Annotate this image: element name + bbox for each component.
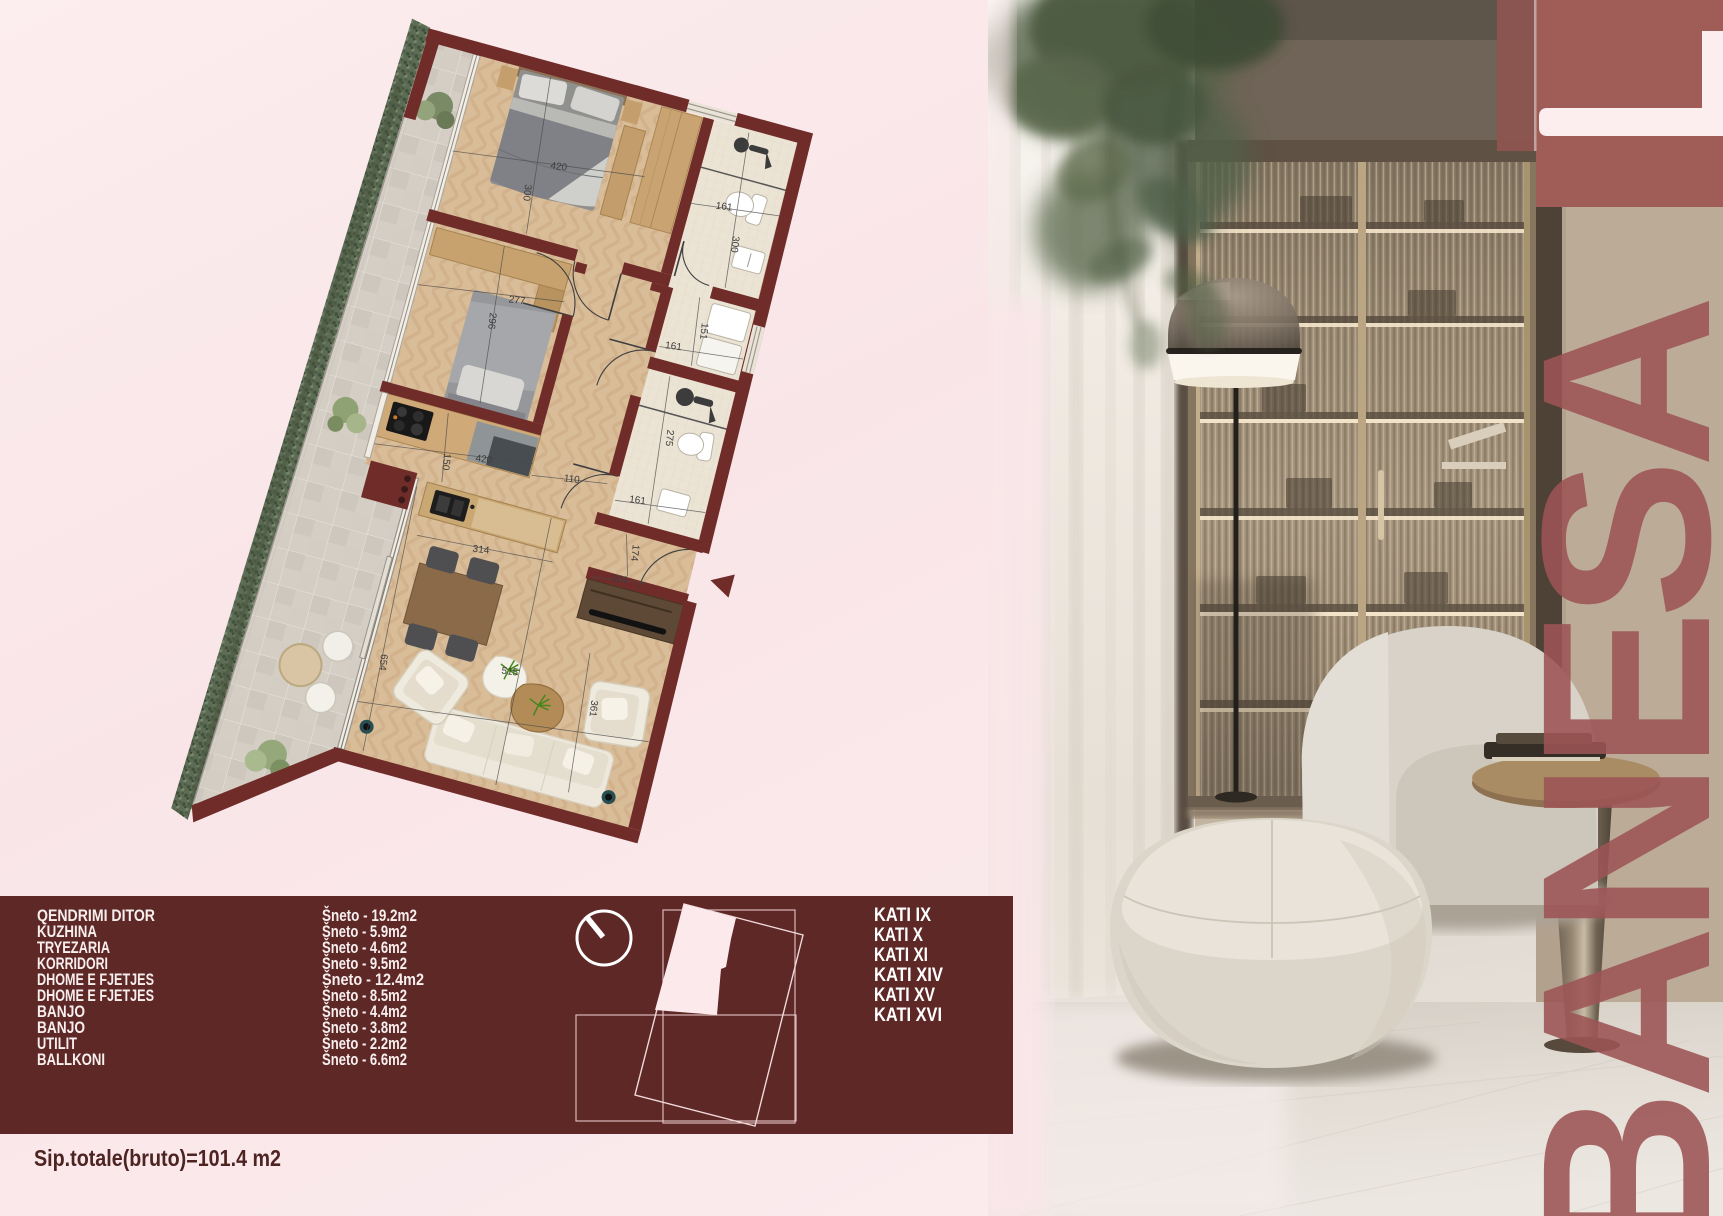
svg-text:151: 151: [697, 322, 710, 340]
svg-text:150: 150: [439, 453, 452, 471]
svg-text:296: 296: [485, 312, 498, 330]
svg-text:KATI IX: KATI IX: [874, 905, 931, 926]
svg-text:BANESA: BANESA: [1492, 301, 1723, 1216]
svg-text:654: 654: [376, 653, 389, 671]
svg-text:161: 161: [664, 340, 682, 353]
svg-text:KATI XV: KATI XV: [874, 985, 935, 1006]
svg-text:174: 174: [628, 544, 641, 562]
svg-text:Sip.totale(bruto)=101.4 m2: Sip.totale(bruto)=101.4 m2: [34, 1145, 281, 1171]
svg-text:300: 300: [520, 184, 533, 202]
svg-text:KATI XI: KATI XI: [874, 945, 928, 966]
svg-text:KATI X: KATI X: [874, 925, 923, 946]
svg-text:420: 420: [550, 161, 568, 174]
svg-text:110: 110: [563, 473, 581, 486]
svg-text:420: 420: [475, 453, 493, 466]
svg-text:314: 314: [472, 544, 490, 557]
svg-text:361: 361: [586, 700, 599, 718]
svg-text:277: 277: [508, 294, 526, 307]
svg-text:Šneto - 6.6m2: Šneto - 6.6m2: [322, 1050, 407, 1069]
svg-text:275: 275: [663, 429, 676, 447]
svg-text:161: 161: [629, 494, 647, 507]
svg-text:201: 201: [611, 573, 629, 586]
svg-text:161: 161: [715, 201, 733, 214]
svg-text:KATI XVI: KATI XVI: [874, 1005, 942, 1026]
svg-text:KATI XIV: KATI XIV: [874, 965, 943, 986]
svg-text:515: 515: [501, 666, 519, 679]
svg-text:300: 300: [728, 235, 741, 253]
svg-text:BALLKONI: BALLKONI: [37, 1051, 105, 1069]
